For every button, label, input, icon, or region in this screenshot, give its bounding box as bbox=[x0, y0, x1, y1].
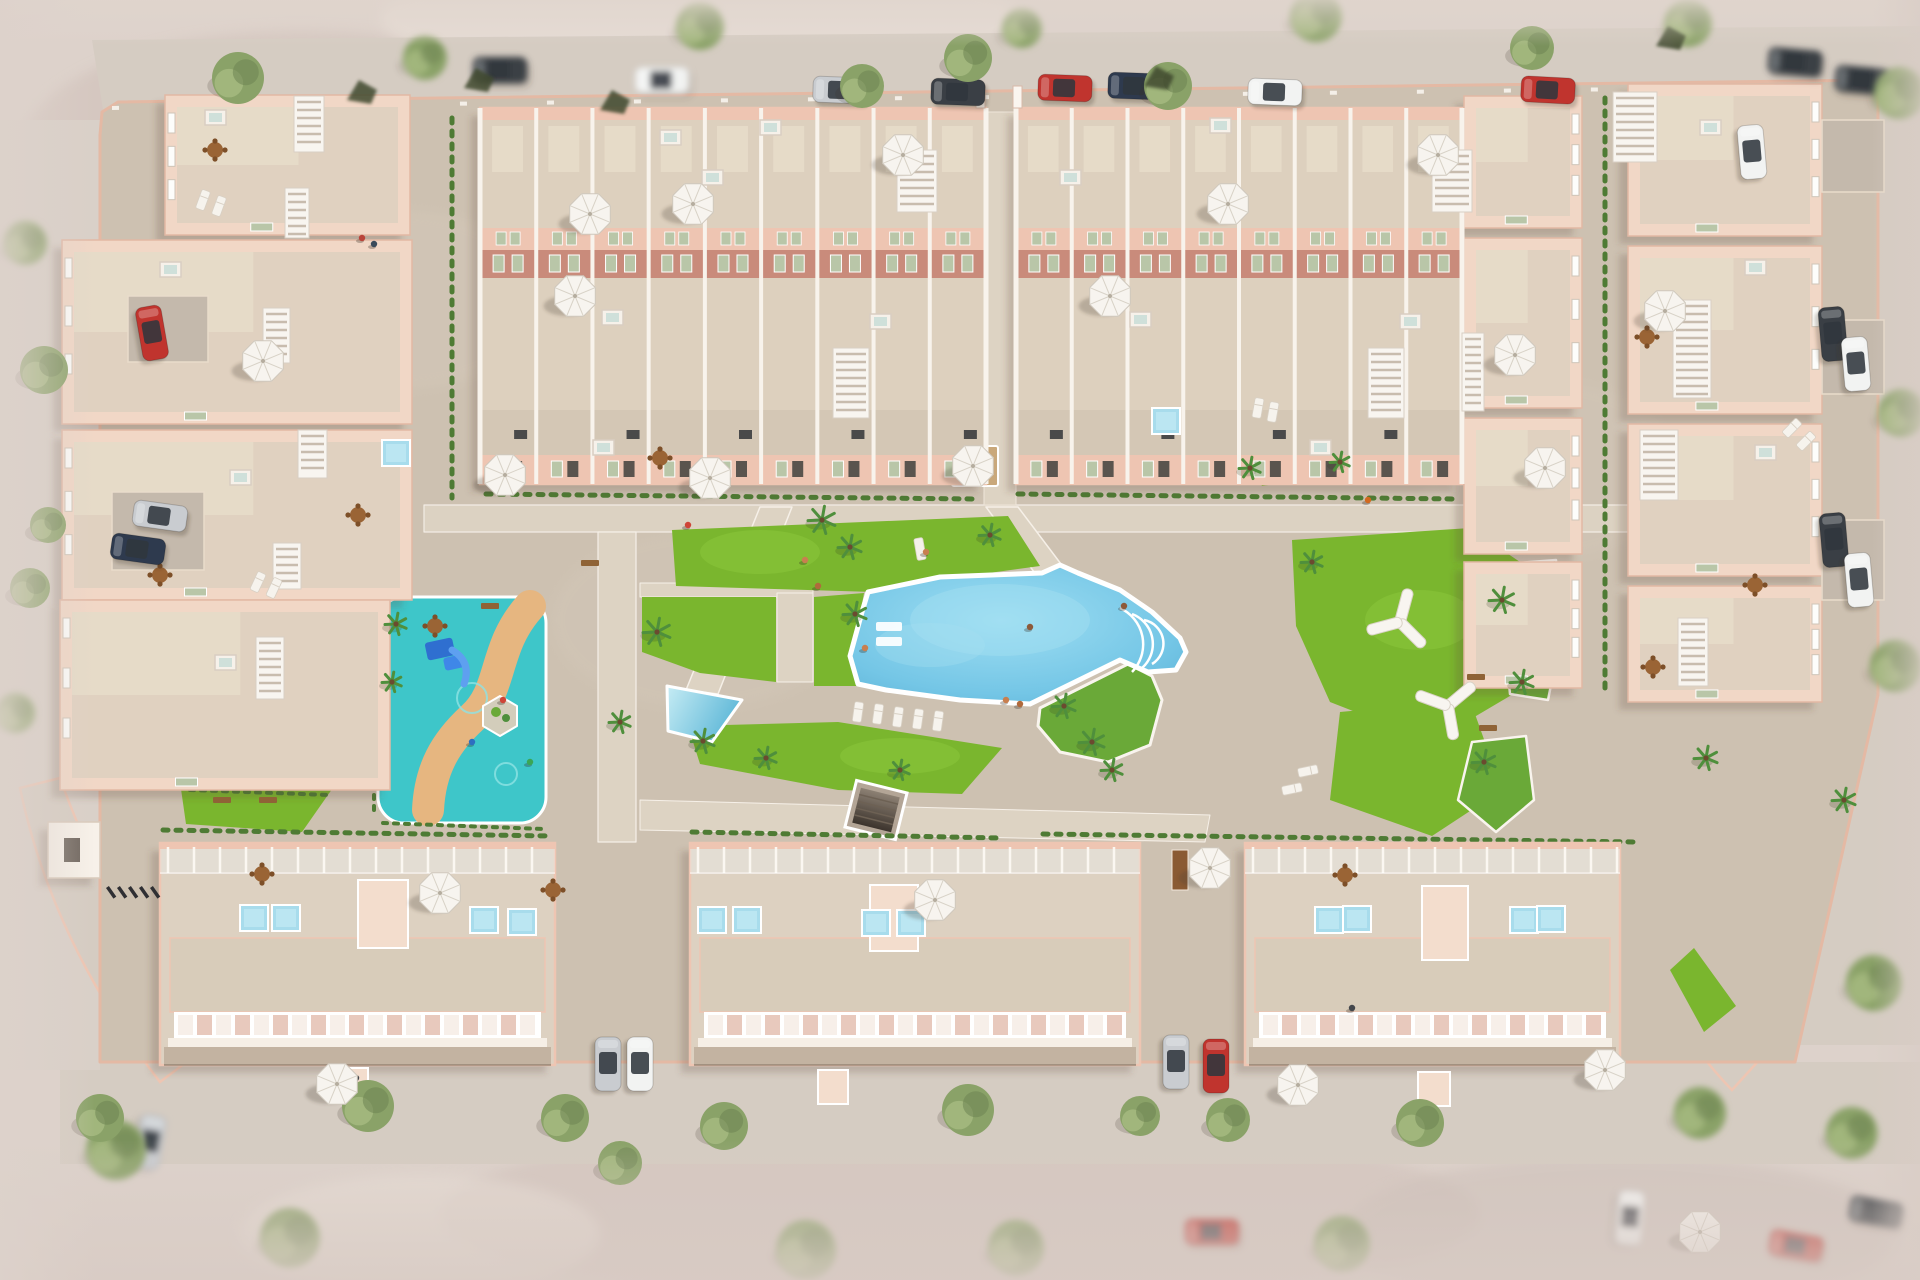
plunge-pool bbox=[508, 909, 536, 935]
staircase bbox=[256, 637, 284, 699]
skylight bbox=[160, 262, 181, 277]
skylight bbox=[760, 120, 781, 135]
skylight bbox=[660, 130, 681, 145]
plunge-pool bbox=[1315, 907, 1343, 933]
plunge-pool bbox=[470, 907, 498, 933]
aerial-render-canvas bbox=[0, 0, 1920, 1280]
car bbox=[1199, 1039, 1229, 1096]
bench bbox=[581, 560, 599, 566]
villa bbox=[156, 95, 410, 243]
apartment-block bbox=[151, 843, 555, 1073]
apartment-block bbox=[681, 843, 1140, 1073]
plunge-pool bbox=[1343, 906, 1371, 932]
skylight bbox=[593, 440, 614, 455]
bench bbox=[1479, 725, 1497, 731]
bench bbox=[259, 797, 277, 803]
skylight bbox=[870, 314, 891, 329]
staircase bbox=[285, 188, 309, 238]
staircase bbox=[298, 430, 327, 478]
villa bbox=[1455, 96, 1582, 236]
bench bbox=[481, 603, 499, 609]
skylight bbox=[230, 470, 251, 485]
villa bbox=[53, 240, 412, 432]
staircase bbox=[1613, 92, 1657, 162]
villa bbox=[1619, 586, 1822, 710]
car bbox=[930, 78, 988, 110]
skylight bbox=[1310, 440, 1331, 455]
plunge-pool bbox=[733, 907, 761, 933]
plunge-pool bbox=[382, 440, 410, 466]
skylight bbox=[1130, 312, 1151, 327]
car bbox=[1247, 78, 1305, 110]
car bbox=[1037, 74, 1095, 106]
car bbox=[591, 1037, 621, 1094]
staircase bbox=[1640, 430, 1678, 500]
staircase bbox=[294, 96, 324, 152]
bench bbox=[213, 797, 231, 803]
skylight bbox=[1400, 314, 1421, 329]
skylight bbox=[702, 170, 723, 185]
plunge-pool bbox=[862, 910, 890, 936]
car bbox=[623, 1037, 653, 1094]
plunge-pool bbox=[1152, 408, 1180, 434]
residential-complex-render bbox=[0, 0, 1920, 1280]
villa bbox=[1455, 418, 1582, 562]
skylight bbox=[1700, 120, 1721, 135]
skylight bbox=[1060, 170, 1081, 185]
car bbox=[1837, 336, 1872, 395]
car bbox=[1733, 124, 1768, 183]
plunge-pool bbox=[1537, 906, 1565, 932]
skylight bbox=[1745, 260, 1766, 275]
skylight bbox=[1755, 445, 1776, 460]
skylight bbox=[215, 655, 236, 670]
plunge-pool bbox=[272, 905, 300, 931]
staircase bbox=[1462, 333, 1484, 411]
skylight bbox=[205, 110, 226, 125]
car bbox=[1840, 552, 1875, 611]
plunge-pool bbox=[698, 907, 726, 933]
townhouse-block bbox=[1007, 108, 1462, 492]
car bbox=[1767, 47, 1826, 82]
staircase bbox=[833, 348, 869, 418]
staircase bbox=[1678, 618, 1708, 686]
skylight bbox=[1210, 118, 1231, 133]
plunge-pool bbox=[1510, 907, 1538, 933]
staircase bbox=[1368, 348, 1404, 418]
villa bbox=[51, 600, 390, 798]
parking-ramp bbox=[845, 780, 907, 839]
car bbox=[635, 67, 692, 97]
bench bbox=[1467, 674, 1485, 680]
car bbox=[1159, 1035, 1189, 1092]
skylight bbox=[602, 310, 623, 325]
plunge-pool bbox=[240, 905, 268, 931]
car bbox=[1520, 76, 1578, 109]
